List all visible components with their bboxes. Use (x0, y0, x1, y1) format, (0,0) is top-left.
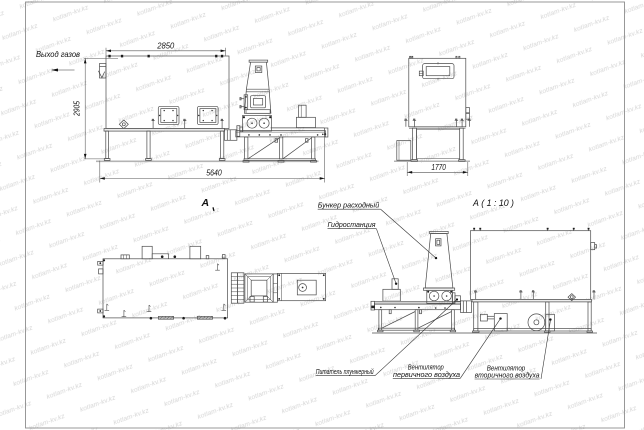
svg-text:Бункер расходный: Бункер расходный (318, 200, 380, 209)
svg-text:Выход газов: Выход газов (36, 49, 81, 59)
svg-text:Гидростанция: Гидростанция (328, 220, 376, 229)
svg-text:1770: 1770 (431, 162, 446, 172)
svg-text:2905: 2905 (73, 101, 82, 117)
svg-text:первичного воздуха: первичного воздуха (393, 371, 460, 379)
svg-text:Вентилятор: Вентилятор (408, 365, 444, 372)
svg-text:А: А (201, 197, 210, 209)
svg-text:Питатель плунжерный: Питатель плунжерный (316, 368, 374, 376)
svg-text:А ( 1 : 10 ): А ( 1 : 10 ) (472, 198, 514, 208)
svg-text:вторичного воздуха: вторичного воздуха (475, 371, 540, 379)
svg-text:2850: 2850 (156, 41, 174, 50)
svg-text:5640: 5640 (206, 168, 222, 177)
